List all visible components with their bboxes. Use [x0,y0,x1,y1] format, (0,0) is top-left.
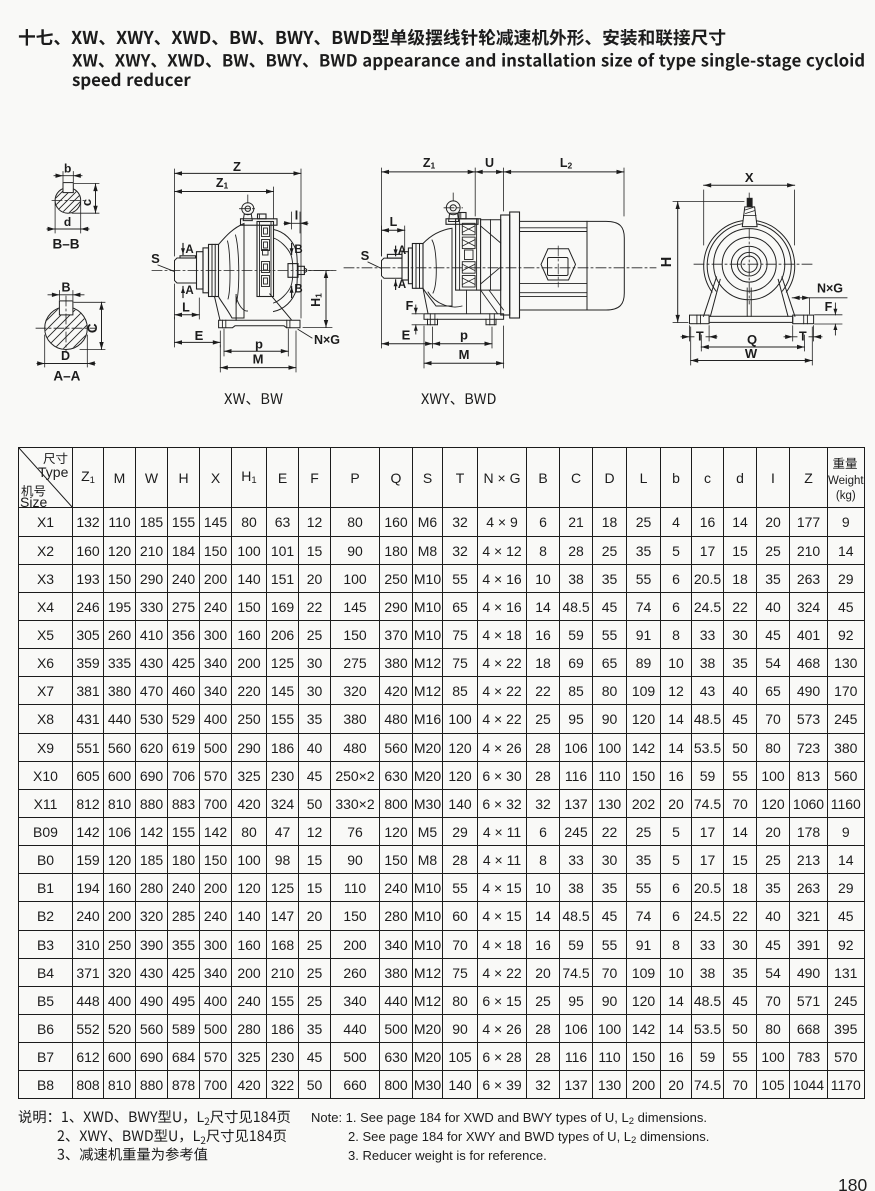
svg-text:X: X [745,170,754,185]
svg-text:C: C [85,323,100,333]
svg-text:A–A: A–A [53,369,80,384]
svg-text:M: M [459,347,470,362]
svg-text:N×G: N×G [817,282,843,296]
svg-text:N×G: N×G [314,333,340,347]
svg-text:E: E [195,328,204,343]
svg-text:H1: H1 [309,293,324,307]
svg-text:D: D [61,349,70,363]
svg-text:T: T [799,330,807,344]
svg-text:M: M [253,352,264,367]
svg-text:T: T [696,330,704,344]
svg-text:Z: Z [233,159,241,174]
svg-text:B: B [61,281,70,295]
svg-text:L: L [390,215,398,229]
svg-text:U: U [485,156,494,170]
svg-text:S: S [361,248,370,263]
svg-text:B–B: B–B [52,237,79,252]
svg-text:A: A [185,244,193,256]
svg-text:A: A [398,245,406,257]
svg-text:F: F [406,299,414,313]
svg-text:A: A [398,279,406,291]
svg-text:p: p [255,337,263,352]
svg-text:L: L [182,301,190,315]
svg-text:p: p [460,328,468,343]
svg-text:b: b [64,162,71,176]
svg-text:A: A [185,285,193,297]
svg-text:H: H [659,257,675,267]
svg-text:Q: Q [747,332,757,347]
svg-text:S: S [151,251,160,266]
svg-text:Z1: Z1 [423,156,436,171]
svg-text:F: F [825,300,833,314]
svg-text:B: B [294,284,302,296]
svg-text:E: E [402,328,411,343]
svg-text:B: B [294,244,302,256]
svg-text:W: W [745,346,758,361]
svg-text:c: c [79,199,94,206]
svg-text:L2: L2 [560,156,573,171]
svg-text:I: I [295,209,298,223]
svg-text:Z1: Z1 [216,176,229,191]
svg-text:d: d [64,215,71,229]
